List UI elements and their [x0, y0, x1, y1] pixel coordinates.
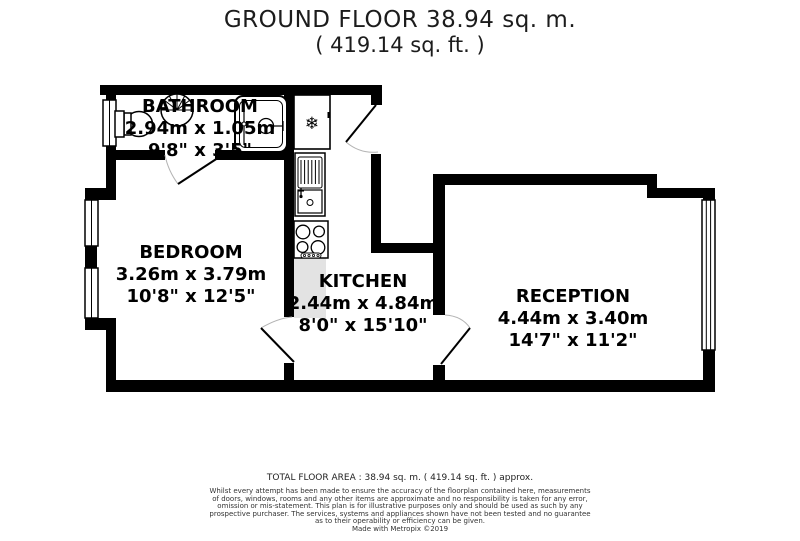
room-dim-imperial: 9'8" x 3'5" — [110, 140, 290, 162]
wall-reception-top-a — [433, 174, 657, 185]
wall-bottom — [106, 380, 715, 392]
bedroom-window-lower — [85, 268, 98, 318]
wall-bay-jut-bottom — [85, 318, 116, 330]
wall-entrance-stub-top — [371, 85, 382, 105]
room-name: KITCHEN — [273, 271, 453, 293]
kitchen-entrance-door-swing — [346, 105, 378, 152]
wall-bedroom-kitchen-stub — [284, 363, 294, 392]
room-name: BATHROOM — [110, 96, 290, 118]
room-dim-imperial: 10'8" x 12'5" — [101, 286, 281, 308]
wall-kitchen-right — [371, 154, 381, 253]
wall-top — [100, 85, 382, 95]
floorplan-page: GROUND FLOOR 38.94 sq. m. ( 419.14 sq. f… — [0, 0, 800, 541]
reception-window — [702, 200, 715, 350]
hob-icon — [294, 221, 328, 258]
room-dim-metric: 2.94m x 1.05m — [110, 118, 290, 140]
room-label-reception: RECEPTION 4.44m x 3.40m 14'7" x 11'2" — [483, 286, 663, 352]
wall-reception-left-stub — [433, 365, 445, 392]
room-label-bedroom: BEDROOM 3.26m x 3.79m 10'8" x 12'5" — [101, 242, 281, 308]
disclaimer: Whilst every attempt has been made to en… — [0, 488, 800, 534]
bedroom-window-upper — [85, 200, 98, 246]
room-dim-metric: 2.44m x 4.84m — [273, 293, 453, 315]
room-name: RECEPTION — [483, 286, 663, 308]
total-floor-area: TOTAL FLOOR AREA : 38.94 sq. m. ( 419.14… — [0, 473, 800, 483]
fridge-freezer-icon: ❄ — [294, 95, 331, 149]
wall-reception-right-bottom — [703, 350, 715, 392]
room-label-kitchen: KITCHEN 2.44m x 4.84m 8'0" x 15'10" — [273, 271, 453, 337]
room-dim-metric: 3.26m x 3.79m — [101, 264, 281, 286]
sink-drainer-icon — [295, 153, 325, 216]
room-dim-metric: 4.44m x 3.40m — [483, 308, 663, 330]
room-dim-imperial: 8'0" x 15'10" — [273, 315, 453, 337]
room-label-bathroom: BATHROOM 2.94m x 1.05m 9'8" x 3'5" — [110, 96, 290, 162]
room-name: BEDROOM — [101, 242, 281, 264]
metropix-credit: Made with Metropix ©2019 — [0, 526, 800, 534]
snowflake-icon: ❄ — [305, 114, 319, 134]
room-dim-imperial: 14'7" x 11'2" — [483, 330, 663, 352]
